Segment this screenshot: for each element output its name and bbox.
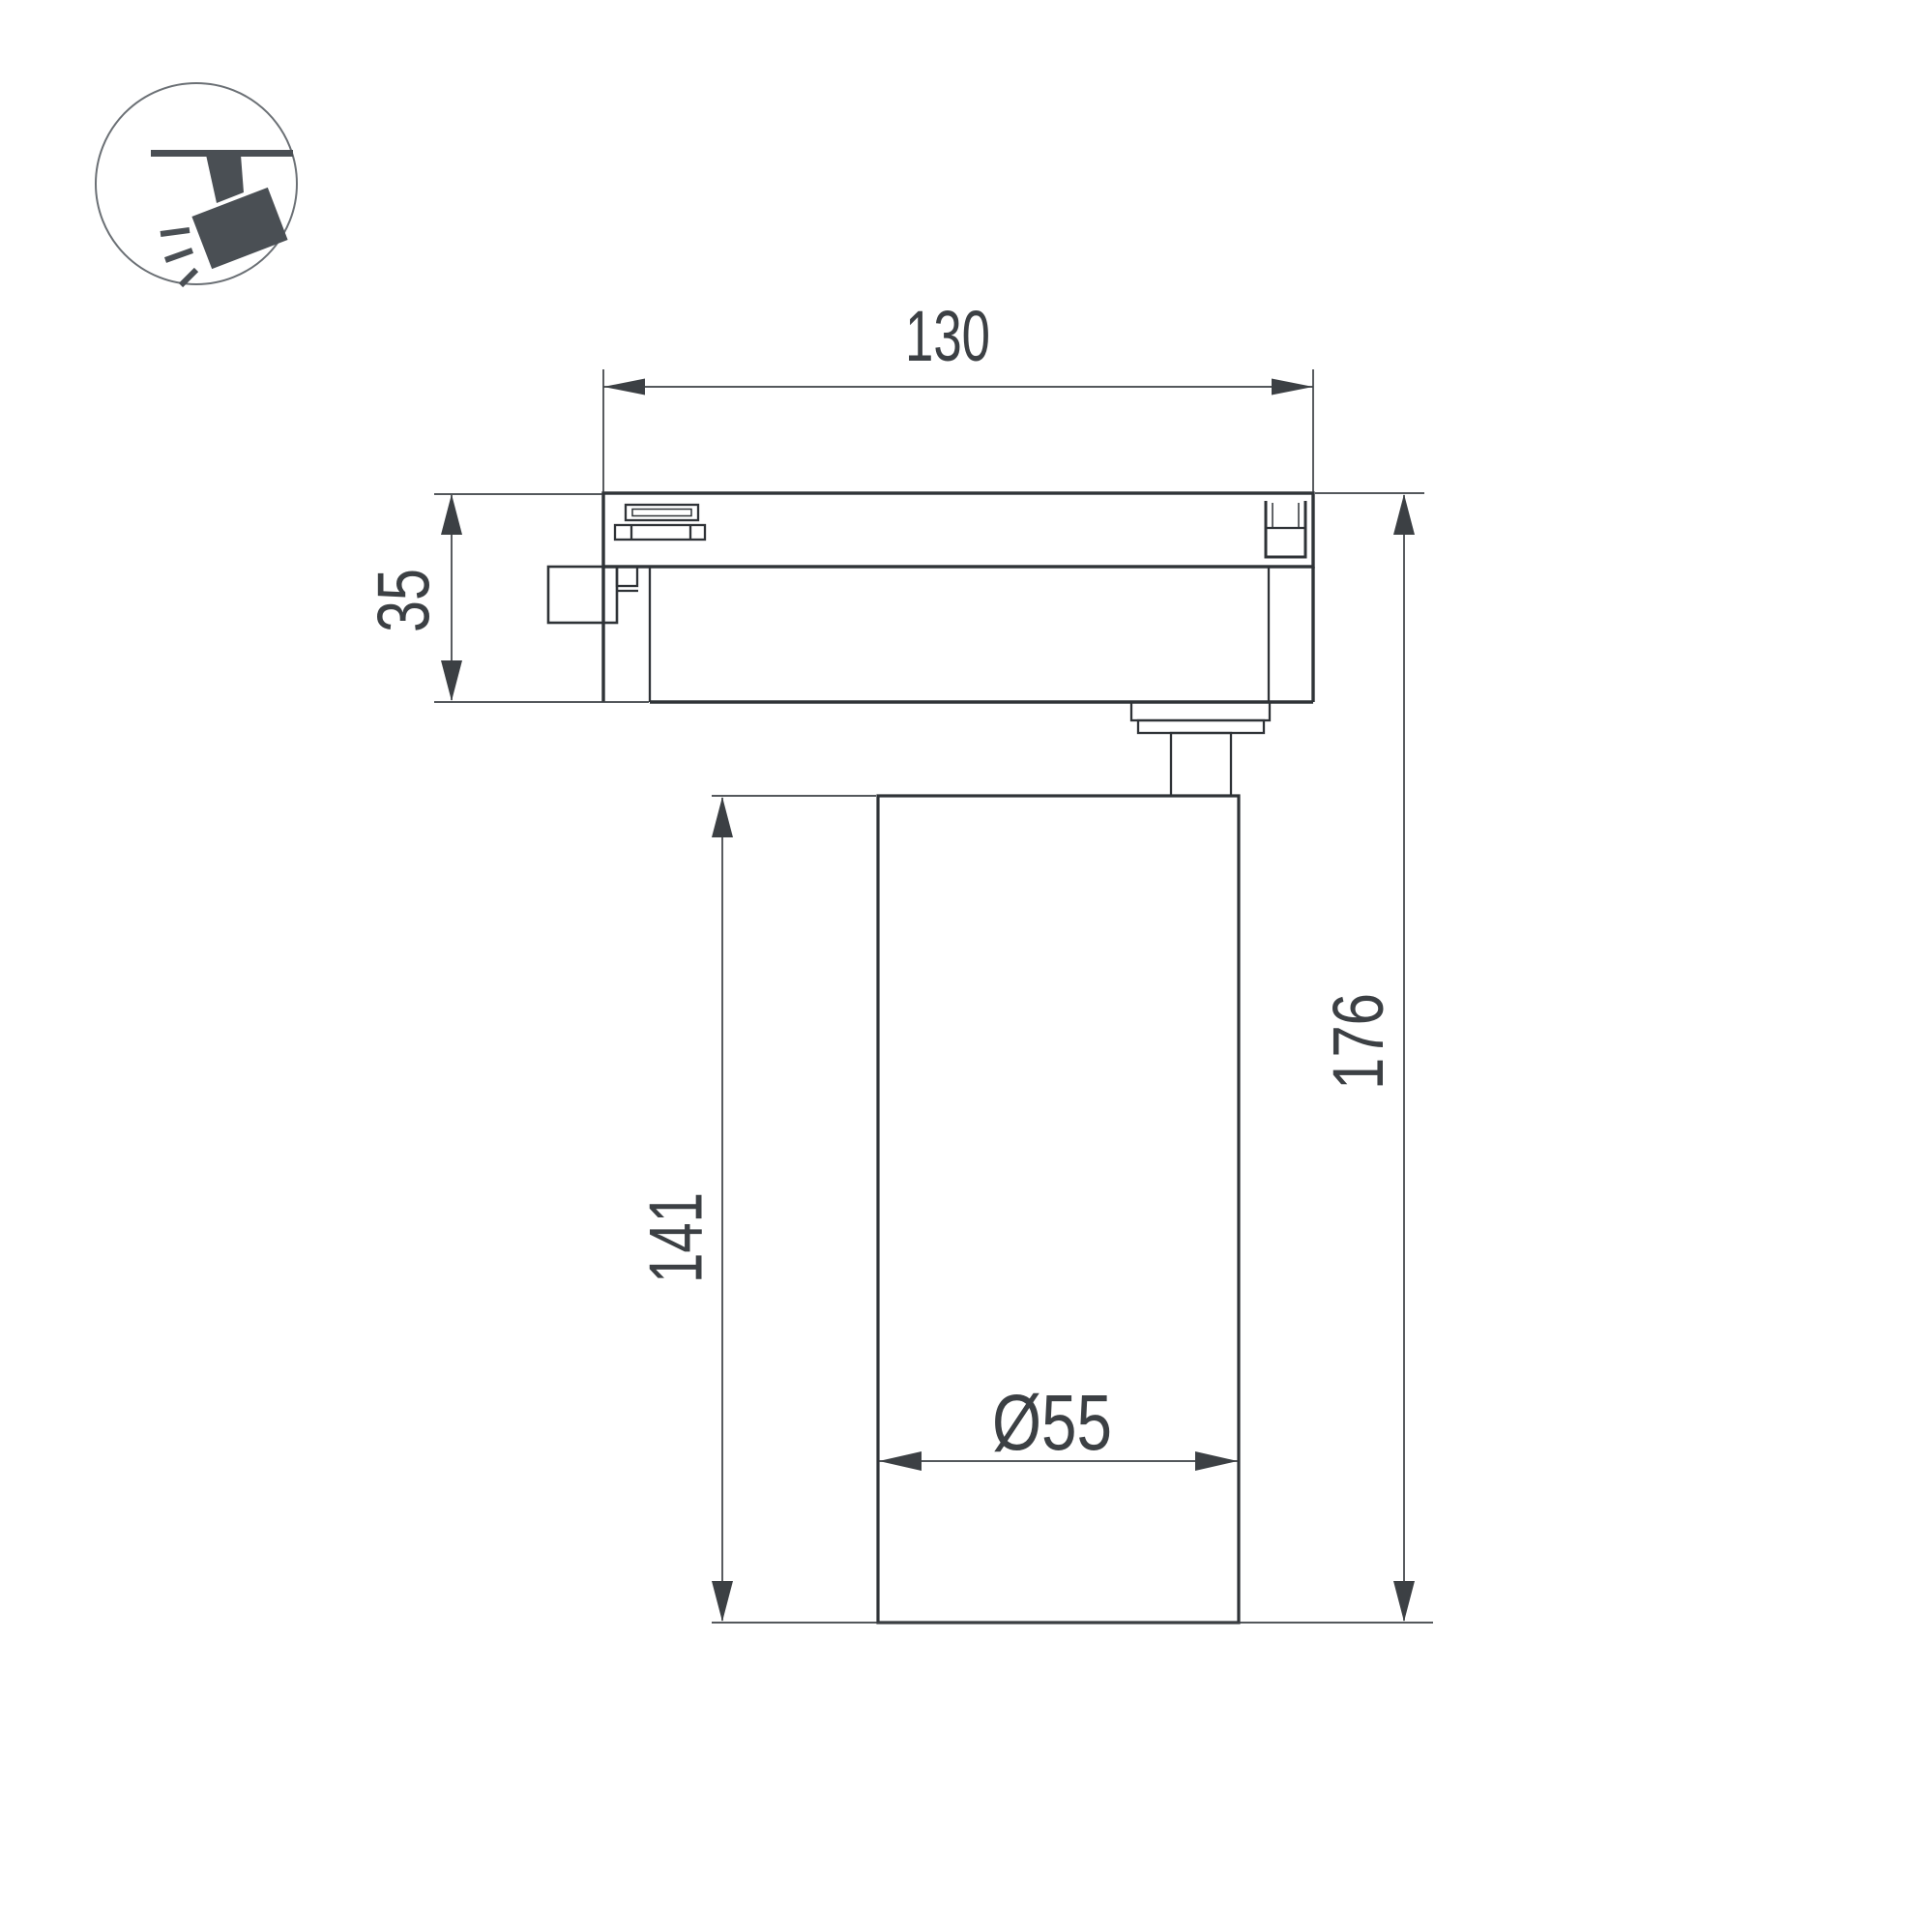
dimension-diameter: Ø55 (879, 1379, 1238, 1471)
arrowhead-up (1393, 494, 1415, 535)
dimension-total-height: 176 (1315, 493, 1424, 1622)
arrowhead-right (1272, 379, 1313, 395)
adapter-top-band (603, 493, 1313, 567)
arrowhead-down (441, 660, 462, 701)
drawing-canvas: 130 35 176 141 Ø55 (0, 0, 1932, 1932)
dimension-track-width: 130 (603, 296, 1313, 492)
arrowhead-left (879, 1451, 922, 1471)
icon-circle (96, 83, 297, 284)
mounting-neck (1131, 702, 1270, 796)
track-adapter (548, 493, 1313, 702)
neck-flange-upper (1131, 702, 1270, 720)
lamp-cylinder (878, 796, 1239, 1623)
dimension-label-total-height: 176 (1318, 993, 1398, 1090)
track-spotlight-icon (96, 83, 297, 285)
dimension-label-track-width: 130 (905, 296, 990, 376)
arrowhead-left (603, 379, 645, 395)
light-ray (161, 230, 190, 234)
technical-drawing-svg: 130 35 176 141 Ø55 (0, 0, 1932, 1932)
arrowhead-down (1393, 1581, 1415, 1622)
neck-stem (1171, 733, 1231, 796)
dimension-label-diameter: Ø55 (992, 1379, 1112, 1467)
arrowhead-up (441, 494, 462, 535)
arrowhead-up (712, 797, 733, 837)
contact-strip-upper (626, 505, 698, 520)
arrowhead-down (712, 1581, 733, 1622)
neck-flange-lower (1138, 720, 1264, 733)
adapter-latch-clip (1266, 501, 1305, 557)
lock-knob (548, 567, 617, 623)
dimension-adapter-height: 35 (364, 494, 649, 702)
dimension-label-adapter-height: 35 (364, 569, 446, 632)
dimension-label-body-height: 141 (632, 1192, 717, 1283)
arrowhead-right (1195, 1451, 1238, 1471)
contact-strip-upper-inner (632, 510, 691, 516)
knob-tab (617, 567, 637, 586)
dimension-body-height: 141 (632, 796, 1433, 1623)
adapter-contacts (615, 505, 705, 540)
